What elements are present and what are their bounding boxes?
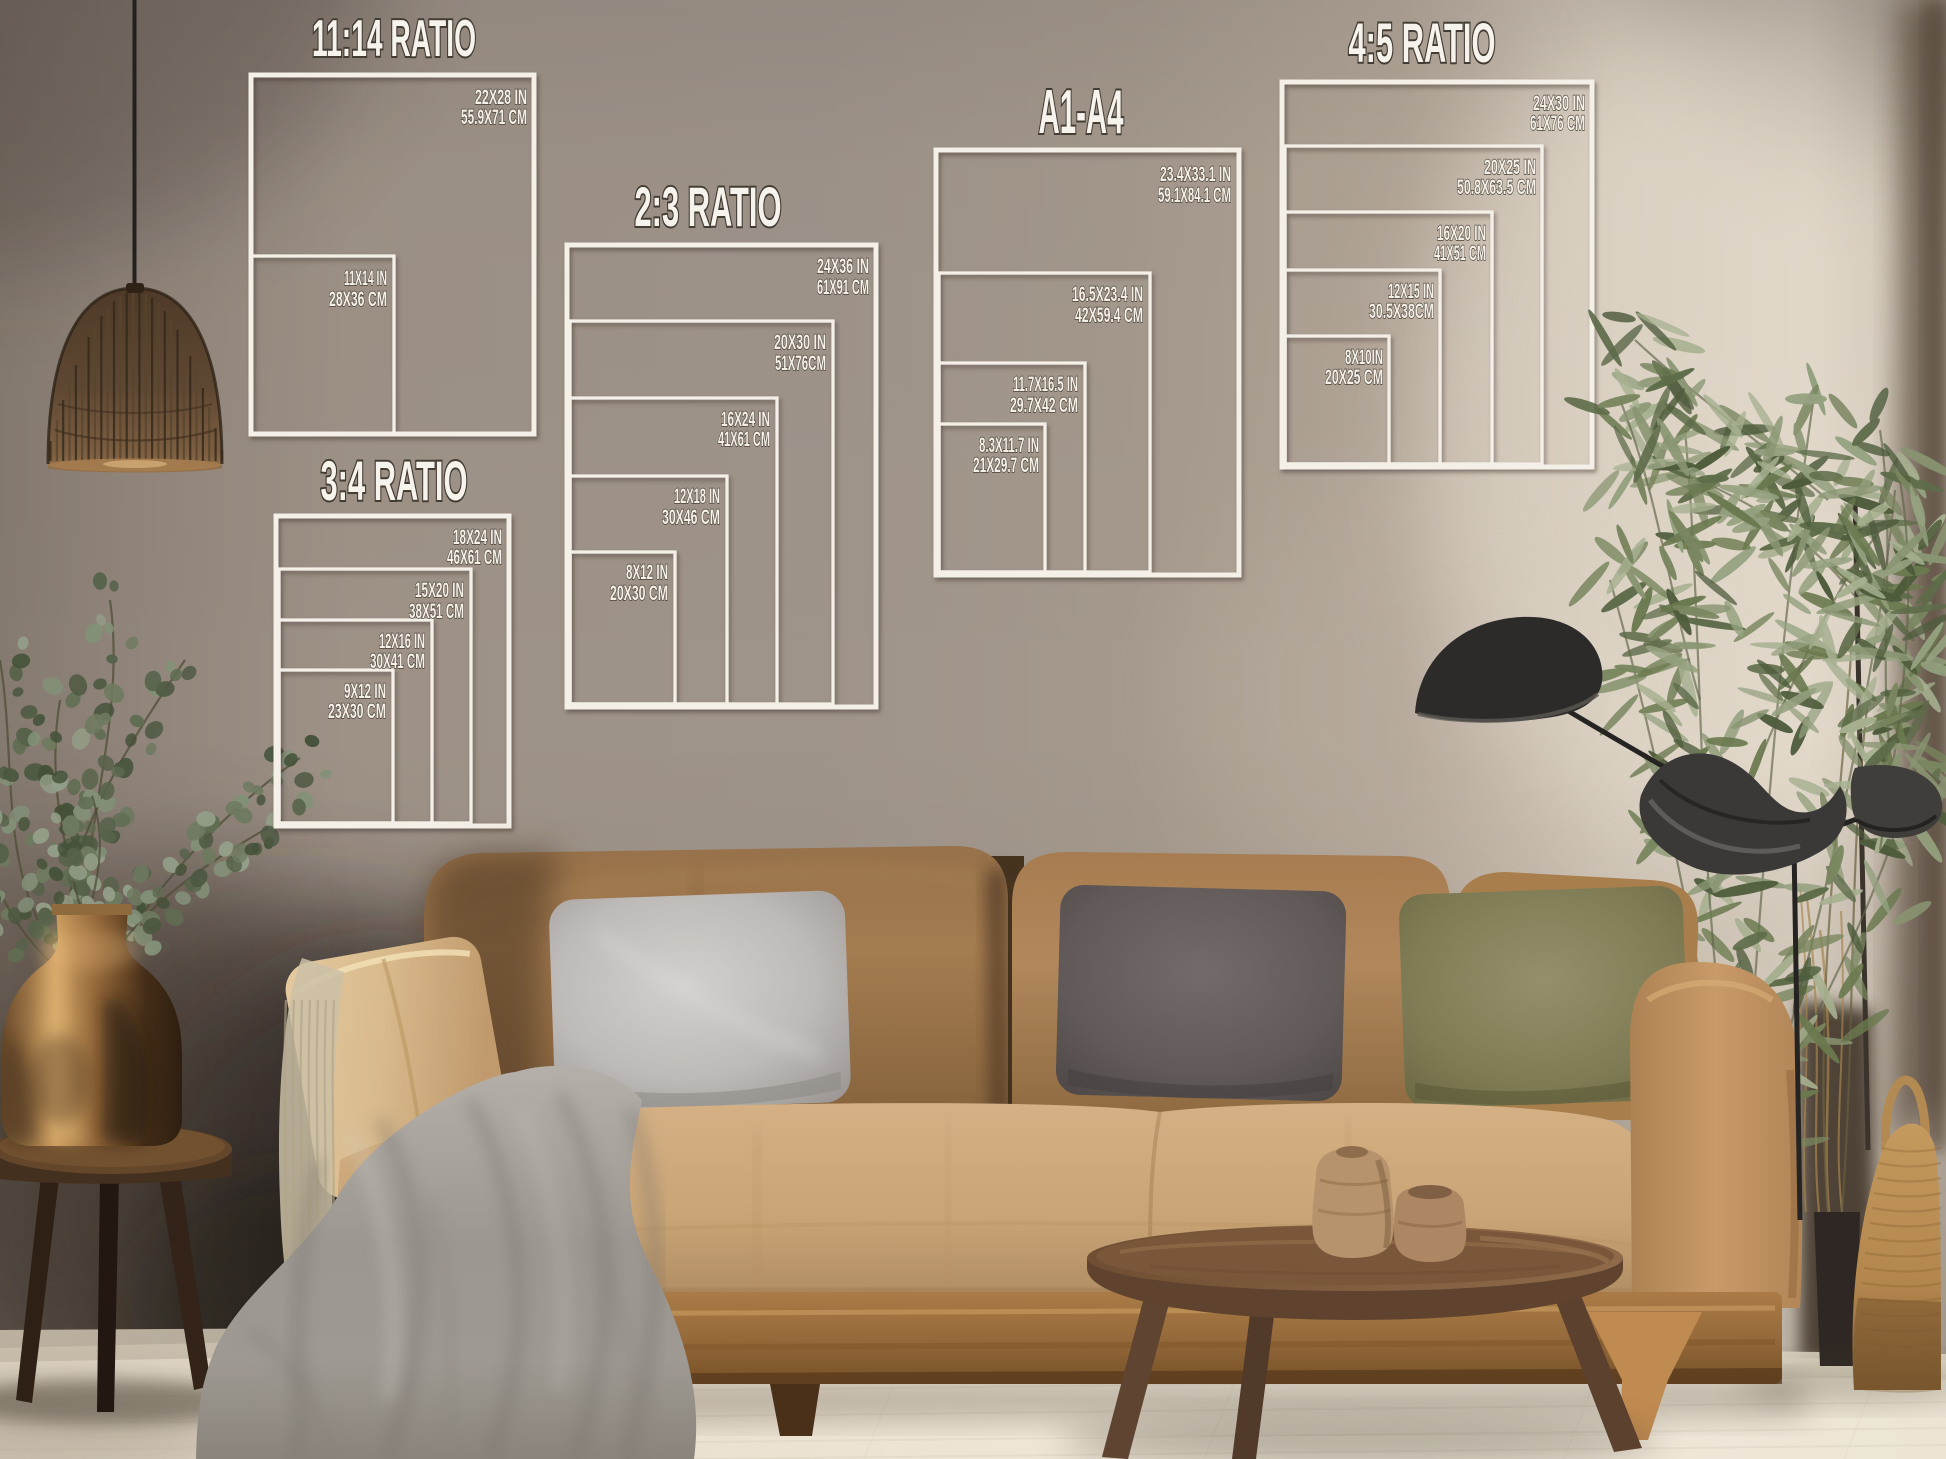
svg-text:42X59.4 CM: 42X59.4 CM: [1075, 304, 1143, 327]
svg-text:11.7X16.5 IN: 11.7X16.5 IN: [1013, 373, 1078, 396]
svg-text:21X29.7 CM: 21X29.7 CM: [973, 454, 1039, 477]
svg-text:41X61 CM: 41X61 CM: [718, 428, 770, 451]
svg-text:24X36 IN: 24X36 IN: [817, 255, 869, 278]
svg-text:11X14 IN: 11X14 IN: [344, 267, 387, 290]
svg-text:30.5X38CM: 30.5X38CM: [1369, 300, 1434, 323]
svg-text:41X51 CM: 41X51 CM: [1434, 242, 1486, 265]
svg-text:15X20 IN: 15X20 IN: [415, 579, 464, 602]
svg-text:11:14 RATIO: 11:14 RATIO: [312, 10, 476, 68]
svg-text:2:3 RATIO: 2:3 RATIO: [635, 175, 782, 238]
svg-text:38X51 CM: 38X51 CM: [409, 600, 464, 623]
svg-text:4:5 RATIO: 4:5 RATIO: [1349, 11, 1496, 74]
svg-text:3:4 RATIO: 3:4 RATIO: [321, 449, 468, 512]
svg-text:23.4X33.1 IN: 23.4X33.1 IN: [1160, 163, 1231, 186]
svg-text:61X91 CM: 61X91 CM: [817, 276, 869, 299]
svg-text:20X30 CM: 20X30 CM: [610, 582, 668, 605]
svg-text:46X61 CM: 46X61 CM: [447, 546, 502, 569]
svg-text:20X25 CM: 20X25 CM: [1325, 366, 1383, 389]
svg-text:A1-A4: A1-A4: [1039, 78, 1124, 147]
svg-text:8X12 IN: 8X12 IN: [626, 561, 668, 584]
svg-text:23X30 CM: 23X30 CM: [328, 700, 386, 723]
svg-text:16.5X23.4 IN: 16.5X23.4 IN: [1072, 283, 1143, 306]
svg-text:55.9X71 CM: 55.9X71 CM: [461, 106, 527, 129]
svg-text:20X30 IN: 20X30 IN: [774, 331, 826, 354]
svg-text:59.1X84.1 CM: 59.1X84.1 CM: [1158, 184, 1231, 207]
svg-text:30X41 CM: 30X41 CM: [370, 650, 425, 673]
svg-text:50.8X63.5 CM: 50.8X63.5 CM: [1457, 176, 1536, 199]
svg-text:30X46 CM: 30X46 CM: [662, 506, 720, 529]
svg-text:28X36 CM: 28X36 CM: [329, 288, 387, 311]
svg-text:61X76 CM: 61X76 CM: [1530, 112, 1585, 135]
svg-text:12X18 IN: 12X18 IN: [674, 485, 720, 508]
svg-text:51X76CM: 51X76CM: [775, 352, 826, 375]
svg-text:29.7X42 CM: 29.7X42 CM: [1010, 394, 1078, 417]
